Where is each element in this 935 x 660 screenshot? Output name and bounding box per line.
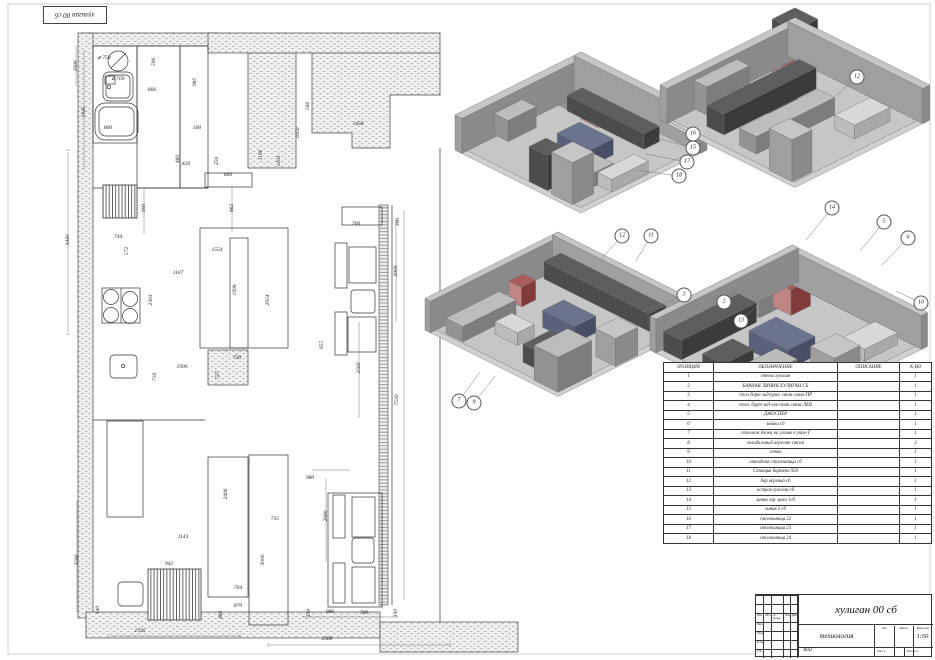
callout-balloon: 7 — [452, 394, 467, 409]
plan-linework — [0, 0, 935, 660]
table-cell: ДЖОСПЕР — [714, 410, 838, 420]
signature-cell — [791, 631, 798, 640]
table-cell: 13 — [664, 486, 714, 496]
signature-cell — [756, 595, 764, 604]
table-row: 11Станция бармена 9501 — [664, 467, 932, 477]
table-cell — [838, 448, 900, 458]
table-cell — [838, 429, 900, 439]
dimension-label: 942 — [165, 561, 173, 567]
dimension-label: 700 — [360, 610, 368, 616]
table-cell: 1 — [900, 372, 932, 382]
signature-cell — [784, 631, 791, 640]
dimension-label: 7530 — [394, 395, 400, 406]
table-cell — [838, 515, 900, 525]
signature-cell — [772, 640, 784, 649]
dimension-label: 2080 — [323, 511, 329, 522]
dimension-label: 140 — [95, 606, 101, 614]
dimension-label: 955 — [319, 341, 325, 349]
table-cell: 1 — [900, 505, 932, 515]
scale-label: Масштаб — [913, 626, 932, 630]
table-cell — [838, 524, 900, 534]
table-cell — [838, 477, 900, 487]
table-cell — [838, 401, 900, 411]
drawing-sheet: 344019451090⌀ 750⌀ 769596806985800500460… — [0, 0, 935, 660]
signature-cell: Изм. — [756, 613, 764, 622]
dimension-label: 1190 — [258, 150, 264, 161]
table-row: 1стены хулиган1 — [664, 372, 932, 382]
dimension-label: 730 — [233, 355, 241, 361]
table-row: 5ДЖОСПЕР1 — [664, 410, 932, 420]
signature-cell — [784, 595, 791, 604]
table-cell: 11 — [664, 467, 714, 477]
title-block: Изм.Лист№ докум.Подп.ДатаРазраб.Пров.Н.к… — [755, 594, 932, 657]
corner-stamp: хулиган 00 сб — [43, 6, 107, 24]
table-row: 4стол. борт зад-лев стан.связи-ЛЕВ1 — [664, 401, 932, 411]
dimension-label: ⌀ 769 — [112, 76, 125, 82]
signature-cell: Подп. — [784, 613, 791, 622]
table-cell: 1 — [900, 534, 932, 544]
table-cell: стол борт зад-прав. стан связи-ПР — [714, 391, 838, 401]
dimension-label: 1458 — [353, 121, 364, 127]
table-cell: 3 — [664, 391, 714, 401]
signature-cell — [784, 640, 791, 649]
document-section: технология — [798, 625, 874, 647]
signature-cell — [764, 595, 772, 604]
callout-balloon: 16 — [686, 127, 701, 142]
signature-cell — [791, 595, 798, 604]
signature-cell — [764, 640, 772, 649]
material-label: AISI — [798, 647, 874, 656]
table-cell — [838, 458, 900, 468]
dimension-label: 727 — [215, 371, 221, 379]
dimension-label: 256 — [214, 157, 220, 165]
table-cell — [838, 496, 900, 506]
signature-cell — [764, 631, 772, 640]
table-cell: стол. борт зад-лев стан.связи-ЛЕВ — [714, 401, 838, 411]
corner-stamp-text: хулиган 00 сб — [55, 11, 94, 19]
plan-shelving-bottom — [148, 569, 201, 620]
dimension-label: 800 — [224, 172, 232, 178]
table-cell: холодильный агрегат стола — [714, 439, 838, 449]
spec-header-description: ОПИСАНИЕ — [838, 363, 900, 373]
table-cell: 1 — [664, 372, 714, 382]
sheet-total: Листов 1 — [905, 648, 934, 656]
dimension-label: 704 — [234, 585, 242, 591]
signature-cell — [772, 649, 784, 658]
table-cell: 12 — [664, 477, 714, 487]
table-cell: 1 — [900, 496, 932, 506]
callout-balloon: 6 — [901, 231, 916, 246]
plan-wall-ladder — [379, 205, 388, 605]
signature-cell — [791, 640, 798, 649]
table-row: 14линия гор. цеха 1сб1 — [664, 496, 932, 506]
signature-cell — [772, 631, 784, 640]
table-cell: столешница 23 — [714, 524, 838, 534]
spec-header-position: ПОЗИЦИЯ — [664, 363, 714, 373]
callout-balloon: 3 — [677, 288, 692, 303]
dimension-label: ⌀ 750 — [98, 55, 111, 61]
dimension-label: 1107 — [173, 270, 184, 276]
dimension-label: 460 — [175, 155, 181, 163]
signature-cell — [772, 622, 784, 631]
callout-balloon: 11 — [644, 229, 659, 244]
table-cell: 1 — [900, 486, 932, 496]
callout-balloon: 10 — [914, 296, 929, 311]
table-cell — [838, 486, 900, 496]
callout-balloon: 12 — [615, 229, 630, 244]
table-row: 8холодильный агрегат стола2 — [664, 439, 932, 449]
sheet-counts: Лист 1 Листов 1 — [875, 647, 933, 656]
dimension-label: 900 — [141, 204, 147, 212]
dimension-label: 330 — [306, 609, 312, 617]
table-cell — [838, 534, 900, 544]
signature-cell: Лист — [764, 613, 772, 622]
dimension-label: 3000 — [260, 555, 266, 566]
callout-balloon: 12 — [850, 70, 865, 85]
dimension-label: 2380 — [322, 636, 333, 642]
signature-grid: Изм.Лист№ докум.Подп.ДатаРазраб.Пров.Н.к… — [756, 595, 798, 658]
table-cell: стеллаж блоки на уголке в упак-Т — [714, 429, 838, 439]
table-cell: линия гор. цеха 1сб — [714, 496, 838, 506]
table-cell: 16 — [664, 515, 714, 525]
table-cell: 1 — [900, 420, 932, 430]
sheet-number: Лист 1 — [875, 648, 905, 656]
dimension-label: 2560 — [356, 363, 362, 374]
spec-header-designation: ОБОЗНАЧЕНИЕ — [714, 363, 838, 373]
table-cell: 1 — [900, 448, 932, 458]
table-cell: 1 — [900, 515, 932, 525]
callout-balloon: 17 — [680, 155, 695, 170]
signature-cell — [791, 649, 798, 658]
callout-balloon: 5 — [877, 215, 892, 230]
table-cell: бар верхний сб — [714, 477, 838, 487]
table-cell: 18 — [664, 534, 714, 544]
dimension-label: 2303 — [148, 295, 154, 306]
signature-cell: Дата — [791, 613, 798, 622]
table-cell — [838, 420, 900, 430]
table-row: 2БАРНАЯ ЛИНИЯ ХУЛИГАН СБ1 — [664, 382, 932, 392]
dimension-label: 572 — [124, 247, 130, 255]
dimension-label: 2496 — [223, 489, 229, 500]
dimension-label: 596 — [151, 58, 157, 66]
table-row: 7стеллаж блоки на уголке в упак-Т1 — [664, 429, 932, 439]
table-cell: 14 — [664, 496, 714, 506]
signature-cell — [764, 604, 772, 613]
signature-cell — [791, 604, 798, 613]
table-cell: столешница 22 — [714, 515, 838, 525]
dimension-label: 862 — [229, 204, 235, 212]
table-cell: БАРНАЯ ЛИНИЯ ХУЛИГАН СБ — [714, 382, 838, 392]
table-cell: 1 — [900, 477, 932, 487]
dimension-label: 330 — [393, 609, 399, 617]
table-cell: 1 — [900, 429, 932, 439]
scale-grid: Лит. Масса Масштаб 1:50 Лист 1 Листов 1 — [874, 625, 933, 656]
table-cell: 17 — [664, 524, 714, 534]
dimension-label: 806 — [148, 87, 156, 93]
dimension-label: 2000 — [393, 266, 399, 277]
table-cell: 1 — [900, 382, 932, 392]
table-cell: стены хулиган — [714, 372, 838, 382]
dimension-label: 744 — [114, 234, 122, 240]
dimension-label: 3580 — [74, 555, 80, 566]
table-row: 10откидная столешница сб1 — [664, 458, 932, 468]
dimension-label: 1990 — [177, 364, 188, 370]
signature-cell: Разраб. — [756, 622, 764, 631]
signature-cell: Утв. — [756, 649, 764, 658]
table-cell — [838, 410, 900, 420]
dimension-label: 735 — [271, 516, 279, 522]
table-row: 9сетка1 — [664, 448, 932, 458]
table-cell: 1 — [900, 410, 932, 420]
table-cell: 9 — [664, 448, 714, 458]
spec-header-row: ПОЗИЦИЯ ОБОЗНАЧЕНИЕ ОПИСАНИЕ К-ВО — [664, 363, 932, 373]
signature-cell — [772, 595, 784, 604]
table-cell — [838, 382, 900, 392]
table-cell: 1 — [900, 391, 932, 401]
table-cell — [838, 391, 900, 401]
table-cell: столешница 24 — [714, 534, 838, 544]
dimension-label: 1203 — [276, 156, 282, 167]
dimension-label: 566 — [305, 102, 311, 110]
plan-shelving-top — [103, 185, 137, 218]
callout-balloon: 9 — [467, 396, 482, 411]
table-cell: 1 — [900, 524, 932, 534]
table-cell — [838, 467, 900, 477]
spec-table: ПОЗИЦИЯ ОБОЗНАЧЕНИЕ ОПИСАНИЕ К-ВО 1стены… — [663, 362, 932, 544]
dimension-label: 420 — [182, 161, 190, 167]
spec-header-qty: К-ВО — [900, 363, 932, 373]
table-row: 18столешница 241 — [664, 534, 932, 544]
signature-cell — [772, 604, 784, 613]
table-row: 16столешница 221 — [664, 515, 932, 525]
table-cell: мойка сб — [714, 420, 838, 430]
table-row: 12бар верхний сб1 — [664, 477, 932, 487]
dimension-label: 700 — [352, 221, 360, 227]
dimension-label: 1554 — [212, 247, 223, 253]
table-row: 13остров хулиган сб1 — [664, 486, 932, 496]
table-cell: 4 — [664, 401, 714, 411]
dimension-label: 1090 — [73, 61, 79, 72]
table-cell: сетка — [714, 448, 838, 458]
table-cell: 8 — [664, 439, 714, 449]
signature-cell — [764, 622, 772, 631]
signature-cell: Пров. — [756, 631, 764, 640]
table-cell: 7 — [664, 429, 714, 439]
table-cell: 6 — [664, 420, 714, 430]
table-cell: 15 — [664, 505, 714, 515]
signature-cell — [784, 604, 791, 613]
table-cell: 10 — [664, 458, 714, 468]
table-cell: линия 2 сб — [714, 505, 838, 515]
table-cell: Станция бармена 950 — [714, 467, 838, 477]
table-cell: 1 — [900, 401, 932, 411]
dimension-label: 980 — [306, 475, 314, 481]
signature-cell — [764, 649, 772, 658]
callout-balloon: 2 — [717, 295, 732, 310]
dimension-label: 870 — [234, 603, 242, 609]
table-cell: 1 — [900, 458, 932, 468]
signature-cell — [784, 622, 791, 631]
dimension-label: 1143 — [178, 534, 189, 540]
table-cell — [838, 372, 900, 382]
callout-balloon: 15 — [686, 141, 701, 156]
dimension-label: 500 — [193, 125, 201, 131]
dimension-label: 716 — [152, 373, 158, 381]
table-row: 3стол борт зад-прав. стан связи-ПР1 — [664, 391, 932, 401]
signature-cell — [756, 604, 764, 613]
signature-cell: Н.контр. — [756, 640, 764, 649]
signature-cell — [791, 622, 798, 631]
signature-cell — [784, 649, 791, 658]
table-cell: 2 — [664, 382, 714, 392]
table-cell: откидная столешница сб — [714, 458, 838, 468]
table-cell: остров хулиган сб — [714, 486, 838, 496]
dimension-label: 1050 — [295, 128, 301, 139]
dimension-label: 1595 — [135, 628, 146, 634]
document-title: хулиган 00 сб — [798, 595, 933, 625]
dimension-label: 1998 — [232, 285, 238, 296]
dimension-label: 480 — [218, 611, 224, 619]
signature-cell: № докум. — [772, 613, 784, 622]
table-cell: 1 — [900, 467, 932, 477]
dimension-label: 300 — [395, 218, 401, 226]
callout-balloon: 18 — [672, 169, 687, 184]
table-cell — [838, 439, 900, 449]
table-cell: 2 — [900, 439, 932, 449]
table-cell — [838, 505, 900, 515]
dimension-label: 3440 — [65, 235, 71, 246]
table-row: 17столешница 231 — [664, 524, 932, 534]
callout-balloon: 14 — [825, 201, 840, 216]
dimension-label: 980 — [326, 609, 334, 615]
callout-balloon: 13 — [734, 314, 749, 329]
dimension-label: 985 — [192, 78, 198, 86]
dimension-label: 2954 — [265, 295, 271, 306]
dimension-label: 1945 — [81, 107, 87, 118]
table-row: 15линия 2 сб1 — [664, 505, 932, 515]
table-cell: 5 — [664, 410, 714, 420]
table-row: 6мойка сб1 — [664, 420, 932, 430]
scale-value: 1:50 — [913, 633, 932, 640]
dimension-label: 800 — [104, 125, 112, 131]
